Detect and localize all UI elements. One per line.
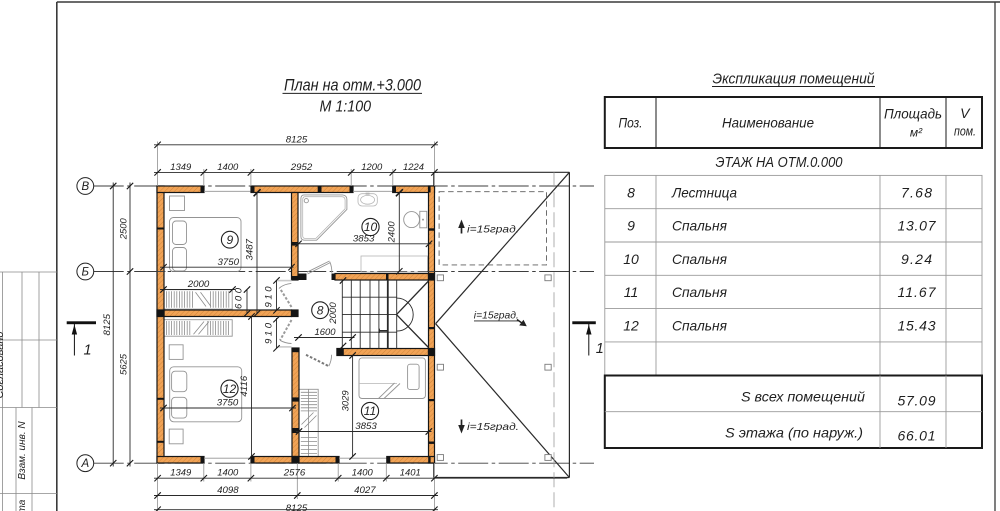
svg-text:1349: 1349	[170, 468, 192, 479]
svg-text:57.09: 57.09	[898, 393, 936, 409]
svg-text:600: 600	[234, 287, 245, 309]
svg-text:3029: 3029	[340, 390, 351, 412]
svg-text:12: 12	[623, 318, 639, 334]
svg-text:Б: Б	[82, 267, 90, 279]
svg-text:910: 910	[263, 286, 274, 308]
svg-text:Спальня: Спальня	[672, 218, 728, 234]
svg-text:1400: 1400	[217, 468, 239, 479]
svg-text:м²: м²	[910, 126, 923, 140]
svg-text:1400: 1400	[352, 468, 374, 479]
svg-text:Площадь: Площадь	[884, 106, 942, 122]
svg-text:66.01: 66.01	[898, 428, 936, 444]
svg-text:пом.: пом.	[954, 125, 976, 139]
svg-text:i=15град.: i=15град.	[474, 309, 519, 321]
svg-text:3750: 3750	[217, 398, 239, 409]
svg-text:3487: 3487	[244, 238, 255, 260]
svg-text:9: 9	[226, 233, 233, 247]
svg-text:9.24: 9.24	[901, 251, 932, 267]
svg-text:Спальня: Спальня	[672, 284, 728, 300]
svg-text:8125: 8125	[286, 503, 308, 511]
svg-text:11: 11	[624, 284, 639, 300]
svg-text:В: В	[81, 181, 89, 193]
svg-text:1: 1	[84, 343, 92, 359]
svg-text:15.43: 15.43	[898, 318, 936, 334]
svg-text:1400: 1400	[217, 162, 239, 173]
svg-text:4027: 4027	[354, 485, 376, 496]
svg-text:11: 11	[364, 404, 376, 418]
svg-text:2400: 2400	[387, 221, 398, 244]
svg-text:8: 8	[317, 303, 324, 317]
svg-text:13.07: 13.07	[898, 218, 937, 234]
svg-text:1600: 1600	[315, 327, 337, 338]
svg-text:S всех помещений: S всех помещений	[741, 389, 865, 405]
svg-text:2952: 2952	[290, 162, 313, 173]
svg-text:Лестница: Лестница	[671, 184, 737, 200]
svg-text:4098: 4098	[217, 485, 239, 496]
svg-text:Наименование: Наименование	[722, 115, 814, 131]
svg-text:Спальня: Спальня	[672, 251, 728, 267]
svg-text:12: 12	[223, 382, 237, 396]
svg-text:11.67: 11.67	[898, 284, 937, 300]
svg-text:2500: 2500	[119, 218, 130, 241]
svg-text:Согласовано: Согласовано	[0, 331, 6, 398]
svg-text:10: 10	[623, 251, 639, 267]
svg-text:910: 910	[263, 322, 274, 344]
svg-text:Подп. и дата: Подп. и дата	[17, 499, 28, 511]
svg-text:9: 9	[627, 218, 635, 234]
svg-text:М 1:100: М 1:100	[320, 99, 372, 116]
svg-text:Спальня: Спальня	[672, 318, 728, 334]
svg-text:План на отм.+3.000: План на отм.+3.000	[284, 77, 422, 95]
svg-text:Взам. инв. N: Взам. инв. N	[17, 421, 28, 480]
svg-text:Поз.: Поз.	[619, 115, 643, 131]
svg-text:V: V	[960, 105, 971, 121]
svg-text:1401: 1401	[400, 468, 421, 479]
svg-text:8: 8	[627, 184, 635, 200]
svg-text:8125: 8125	[102, 313, 113, 335]
svg-text:10: 10	[364, 220, 378, 234]
svg-text:4116: 4116	[239, 375, 250, 397]
svg-text:ЭТАЖ НА ОТМ.0.000: ЭТАЖ НА ОТМ.0.000	[716, 154, 844, 171]
svg-text:i=15град.: i=15град.	[467, 223, 519, 235]
svg-text:1: 1	[596, 341, 604, 357]
svg-text:8125: 8125	[286, 134, 308, 145]
svg-text:i=15град.: i=15град.	[467, 421, 519, 433]
svg-text:2000: 2000	[187, 279, 210, 290]
svg-text:Экспликация помещений: Экспликация помещений	[713, 71, 876, 88]
svg-text:S этажа (по наруж.): S этажа (по наруж.)	[725, 425, 863, 441]
svg-text:1224: 1224	[403, 162, 424, 173]
svg-text:2576: 2576	[283, 468, 306, 479]
svg-text:А: А	[80, 458, 89, 470]
svg-text:7.68: 7.68	[901, 184, 932, 200]
svg-text:2000: 2000	[328, 302, 339, 325]
svg-text:1200: 1200	[361, 162, 383, 173]
svg-text:5625: 5625	[119, 353, 130, 375]
svg-text:1349: 1349	[170, 162, 192, 173]
svg-text:3750: 3750	[218, 257, 240, 268]
svg-text:3853: 3853	[355, 421, 377, 432]
